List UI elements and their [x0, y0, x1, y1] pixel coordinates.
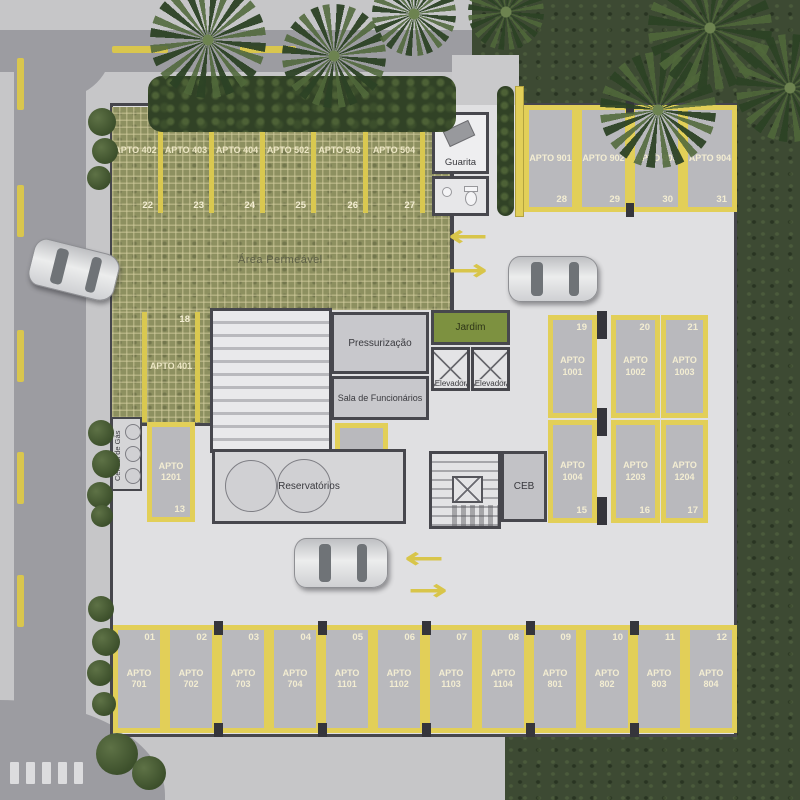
spot-number: 16 — [639, 505, 650, 516]
wall-post — [597, 408, 607, 436]
palm-tree — [282, 4, 386, 108]
elevator-shaft — [452, 476, 483, 503]
spot-number: 26 — [347, 200, 358, 211]
crosswalk-stripe — [26, 762, 35, 784]
sidewalk-left-outer — [0, 30, 14, 800]
room-label: Jardim — [455, 322, 485, 333]
spot-number: 20 — [639, 322, 650, 333]
gas-cylinder — [125, 424, 141, 440]
wall-post — [422, 723, 431, 737]
floor-dashes — [452, 505, 498, 526]
spot-number: 03 — [248, 632, 259, 643]
bush — [132, 756, 166, 790]
car — [508, 256, 598, 302]
spot-apto-label: APTO 802 — [586, 668, 628, 691]
room-label: CEB — [514, 481, 535, 492]
spot-apto-label: APTO 902 — [582, 153, 624, 164]
floor-plan: Área Permeável 22 APTO 402 23 APTO 403 2… — [0, 0, 800, 800]
parking-spot: 28 APTO 901 — [524, 105, 577, 212]
wall-post — [318, 621, 327, 635]
lane-marking — [17, 575, 24, 627]
parking-spot: 17 APTO 1204 — [661, 420, 708, 523]
permeable-area-label: Área Permeável — [238, 254, 322, 266]
bush — [91, 505, 113, 527]
parking-spot: 20 APTO 1002 — [611, 315, 660, 418]
lane-marking — [17, 185, 24, 237]
spot-number: 07 — [456, 632, 467, 643]
parking-spot: 04 APTO 704 — [269, 625, 321, 733]
direction-arrow-left-icon: ← — [404, 544, 444, 574]
spot-number: 30 — [662, 194, 673, 205]
spot-number: 31 — [716, 194, 727, 205]
parking-spot: 02 APTO 702 — [165, 625, 217, 733]
spot-number: 22 — [142, 200, 153, 211]
spot-apto-label: APTO 1003 — [666, 355, 703, 378]
parking-spot: 15 APTO 1004 — [548, 420, 597, 523]
parking-spot: 06 APTO 1102 — [373, 625, 425, 733]
direction-arrow-right-icon: → — [448, 256, 488, 286]
spot-number: 17 — [687, 505, 698, 516]
wall-post — [526, 621, 535, 635]
bush — [87, 166, 111, 190]
lane-marking — [17, 452, 24, 504]
sink — [442, 187, 452, 197]
room-label: Reservatórios — [278, 481, 340, 492]
room-reservatorios: Reservatórios — [212, 449, 406, 524]
parking-spot: 19 APTO 1001 — [548, 315, 597, 418]
spot-apto-label: APTO 1204 — [666, 460, 703, 483]
spot-apto-label: APTO 401 — [150, 361, 192, 372]
room-pressurizacao: Pressurização — [331, 312, 429, 374]
spot-apto-label: APTO 801 — [534, 668, 576, 691]
spot-apto-label: APTO 502 — [267, 145, 309, 156]
parking-spot: 18 APTO 401 — [142, 312, 200, 422]
wall-post — [597, 497, 607, 525]
bush — [88, 108, 116, 136]
toilet — [465, 191, 477, 206]
parking-spot: 08 APTO 1104 — [477, 625, 529, 733]
spot-number: 04 — [300, 632, 311, 643]
spot-number: 27 — [404, 200, 415, 211]
spot-apto-label: APTO 403 — [165, 145, 207, 156]
crosswalk-stripe — [58, 762, 67, 784]
spot-apto-label: APTO 1102 — [378, 668, 420, 691]
room-label: Sala de Funcionários — [338, 393, 423, 403]
spot-apto-label: APTO 1101 — [326, 668, 368, 691]
spot-apto-label: APTO 901 — [529, 153, 571, 164]
spot-apto-label: APTO 1103 — [430, 668, 472, 691]
spot-apto-label: APTO 402 — [114, 145, 156, 156]
spot-apto-label: APTO 804 — [690, 668, 732, 691]
reservoir-tank — [225, 460, 277, 512]
bush — [92, 692, 116, 716]
room-guarita-bathroom — [432, 176, 489, 216]
wall-post — [214, 723, 223, 737]
room-label: Guarita — [435, 157, 486, 168]
wall-post — [630, 723, 639, 737]
lane-marking — [17, 58, 24, 110]
spot-apto-label: APTO 702 — [170, 668, 212, 691]
spot-number: 08 — [508, 632, 519, 643]
parking-spot: 11 APTO 803 — [633, 625, 685, 733]
bush — [88, 596, 114, 622]
spot-apto-label: APTO 1004 — [553, 460, 592, 483]
spot-number: 13 — [174, 504, 185, 515]
gas-cylinder — [125, 446, 141, 462]
car — [294, 538, 388, 588]
road-left — [14, 30, 86, 800]
parking-spot: 07 APTO 1103 — [425, 625, 477, 733]
spot-number: 23 — [193, 200, 204, 211]
wall-post — [626, 203, 634, 217]
parking-spot: 05 APTO 1101 — [321, 625, 373, 733]
spot-number: 15 — [576, 505, 587, 516]
spot-number: 02 — [196, 632, 207, 643]
spot-apto-label: APTO 1001 — [553, 355, 592, 378]
spot-apto-label: APTO 503 — [318, 145, 360, 156]
spot-number: 28 — [556, 194, 567, 205]
spot-number: 10 — [612, 632, 623, 643]
wall-post — [422, 621, 431, 635]
spot-number: 21 — [687, 322, 698, 333]
hedge-strip — [497, 86, 514, 216]
gas-cylinder — [125, 468, 141, 484]
crosswalk-stripe — [42, 762, 51, 784]
spot-apto-label: APTO 404 — [216, 145, 258, 156]
parking-spot: 12 APTO 804 — [685, 625, 737, 733]
spot-apto-label: APTO 703 — [222, 668, 264, 691]
lane-marking — [17, 330, 24, 382]
parking-spot: 10 APTO 802 — [581, 625, 633, 733]
spot-apto-label: APTO 1201 — [152, 461, 190, 484]
spot-number: 01 — [144, 632, 155, 643]
room-ceb: CEB — [501, 451, 547, 522]
direction-arrow-right-icon: → — [408, 576, 448, 606]
wall-post — [597, 311, 607, 339]
spot-number: 25 — [295, 200, 306, 211]
room-sala-funcionarios: Sala de Funcionários — [331, 376, 429, 420]
yellow-boundary-wall — [515, 86, 524, 217]
bush — [92, 450, 120, 478]
bush — [92, 628, 120, 656]
direction-arrow-left-icon: ← — [448, 222, 488, 252]
spot-number: 11 — [665, 632, 675, 643]
room-label: Elevador — [475, 379, 507, 388]
spot-apto-label: APTO 704 — [274, 668, 316, 691]
spot-number: 06 — [404, 632, 415, 643]
bush — [87, 660, 113, 686]
spot-apto-label: APTO 803 — [638, 668, 680, 691]
sidewalk-bottom — [110, 737, 505, 800]
parking-spot: 13 APTO 1201 — [147, 422, 195, 522]
spot-number: 05 — [352, 632, 363, 643]
spot-number: 09 — [560, 632, 571, 643]
crosswalk-stripe — [10, 762, 19, 784]
wall-post — [214, 621, 223, 635]
wall-post — [630, 621, 639, 635]
crosswalk-stripe — [74, 762, 83, 784]
wall-post — [526, 723, 535, 737]
parking-spot: 03 APTO 703 — [217, 625, 269, 733]
spot-apto-label: APTO 1104 — [482, 668, 524, 691]
spot-number: 18 — [179, 314, 190, 325]
spot-apto-label: APTO 701 — [118, 668, 160, 691]
spot-number: 19 — [576, 322, 587, 333]
parking-spot: 16 APTO 1203 — [611, 420, 660, 523]
spot-number: 29 — [609, 194, 620, 205]
toilet-tank — [464, 186, 478, 192]
room-elevador-1: Elevador — [431, 347, 470, 391]
spot-number: 12 — [716, 632, 727, 643]
spot-apto-label: APTO 1203 — [616, 460, 655, 483]
parking-spot: 21 APTO 1003 — [661, 315, 708, 418]
room-label: Elevador — [435, 379, 467, 388]
spot-number: 24 — [244, 200, 255, 211]
room-label: Pressurização — [348, 338, 411, 349]
spot-apto-label: APTO 504 — [373, 145, 415, 156]
bush — [92, 138, 118, 164]
bush — [88, 420, 114, 446]
wall-post — [318, 723, 327, 737]
parking-spot: 01 APTO 701 — [113, 625, 165, 733]
parking-spot: 09 APTO 801 — [529, 625, 581, 733]
spot-apto-label: APTO 904 — [689, 153, 731, 164]
spot-apto-label: APTO 1002 — [616, 355, 655, 378]
room-jardim: Jardim — [431, 310, 510, 345]
room-ramp — [210, 308, 332, 453]
room-elevador-2: Elevador — [471, 347, 510, 391]
